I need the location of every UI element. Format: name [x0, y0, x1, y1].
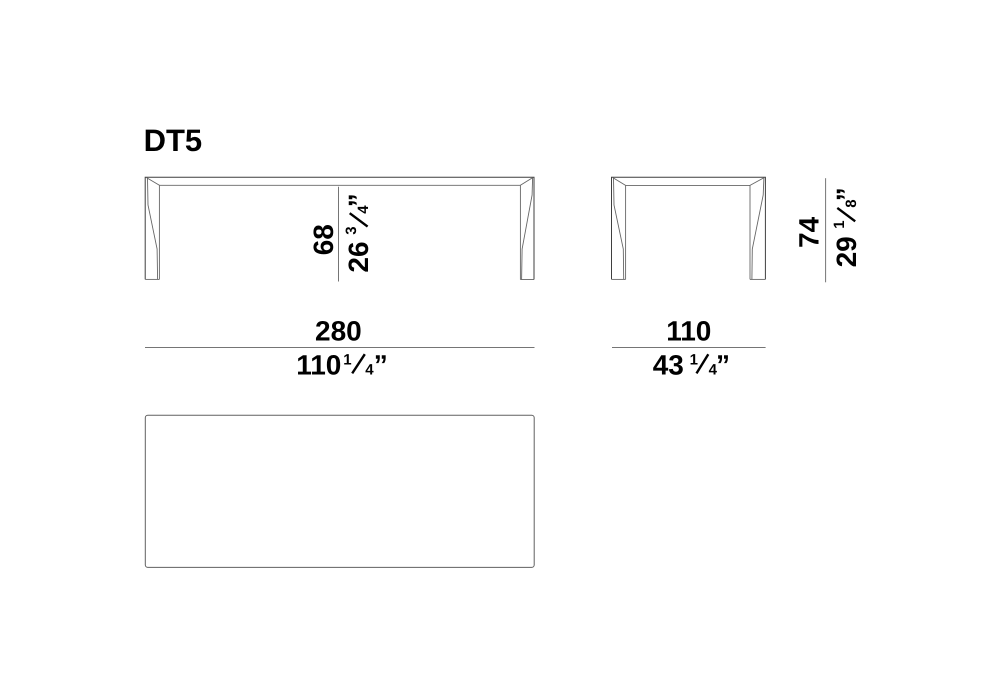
svg-text:280: 280	[315, 316, 362, 347]
svg-text:”: ”	[716, 349, 730, 380]
svg-text:1: 1	[690, 351, 698, 368]
svg-text:110: 110	[666, 316, 711, 347]
svg-text:1: 1	[831, 220, 848, 228]
svg-text:26: 26	[343, 241, 374, 272]
svg-text:1: 1	[343, 351, 351, 368]
svg-text:74: 74	[793, 216, 824, 248]
svg-text:29: 29	[831, 236, 862, 267]
svg-text:68: 68	[308, 224, 339, 255]
svg-text:43: 43	[653, 349, 684, 380]
svg-text:”: ”	[831, 187, 862, 201]
svg-text:DT5: DT5	[144, 123, 203, 158]
svg-text:”: ”	[343, 193, 374, 207]
svg-text:3: 3	[343, 226, 360, 234]
svg-text:”: ”	[374, 349, 388, 380]
svg-text:110: 110	[296, 349, 341, 380]
